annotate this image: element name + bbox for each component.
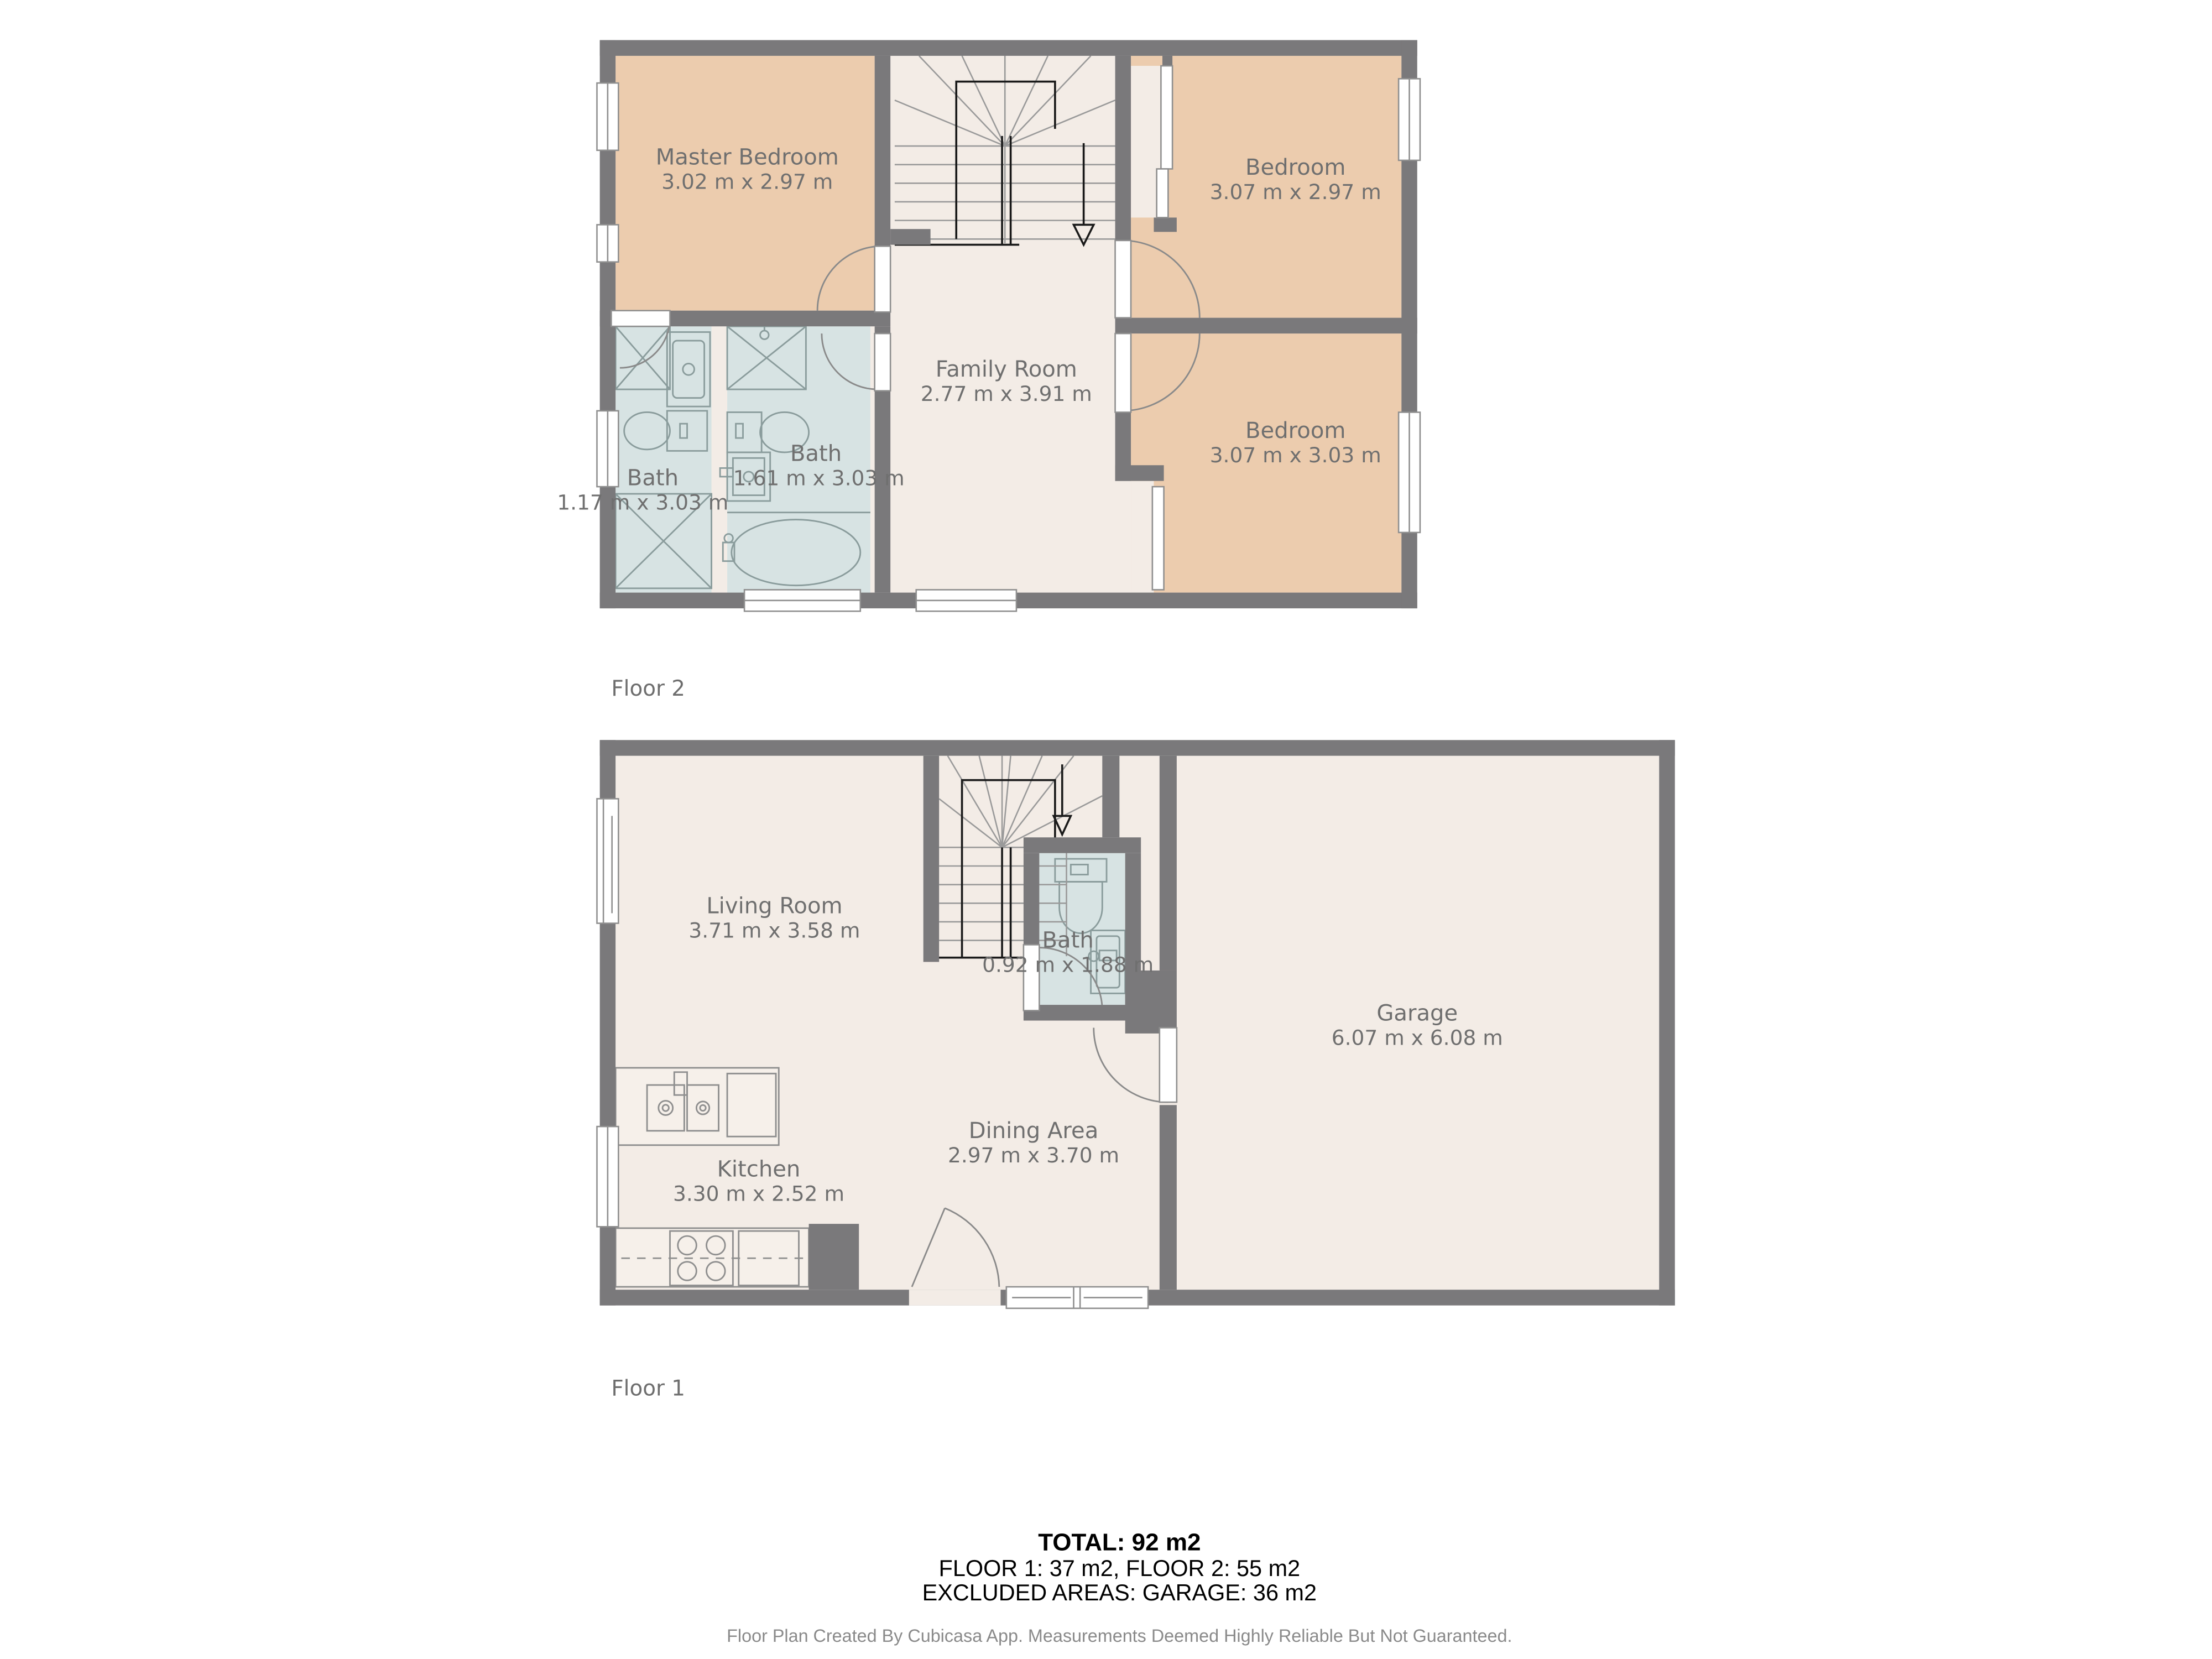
summary-block: TOTAL: 92 m2 FLOOR 1: 37 m2, FLOOR 2: 55…	[727, 1528, 1512, 1646]
window-icon	[597, 799, 618, 923]
sliding-closet-door	[1157, 169, 1168, 217]
room-label: Master Bedroom	[656, 145, 839, 170]
window-icon	[1006, 1287, 1148, 1308]
entry-door-opening	[909, 1290, 1001, 1305]
window-icon	[916, 589, 1016, 611]
window-icon	[597, 1126, 618, 1227]
room-label: Bath	[627, 465, 679, 491]
door-leaf	[611, 311, 670, 326]
room-label: Garage	[1376, 1001, 1458, 1026]
room-dims: 0.92 m x 1.88 m	[982, 953, 1154, 977]
room-dims: 3.30 m x 2.52 m	[673, 1182, 844, 1206]
room-dims: 3.02 m x 2.97 m	[661, 170, 833, 194]
room-label: Living Room	[706, 893, 842, 919]
door-leaf	[875, 333, 890, 391]
room-dims: 3.07 m x 2.97 m	[1210, 180, 1381, 204]
window-icon	[1399, 79, 1420, 160]
excluded-areas-text: EXCLUDED AREAS: GARAGE: 36 m2	[922, 1580, 1317, 1605]
room-label: Dining Area	[969, 1118, 1099, 1144]
door-leaf	[1160, 1027, 1177, 1102]
disclaimer-text: Floor Plan Created By Cubicasa App. Meas…	[727, 1626, 1512, 1646]
floor2-label: Floor 2	[611, 676, 685, 701]
room-label: Kitchen	[717, 1157, 801, 1182]
floor2-plan: Master Bedroom 3.02 m x 2.97 m Bedroom 3…	[557, 40, 1420, 701]
door-leaf	[875, 246, 890, 312]
door-leaf	[1115, 241, 1131, 318]
window-icon	[597, 411, 618, 487]
floor1-label: Floor 1	[611, 1376, 685, 1401]
room-dims: 1.61 m x 3.03 m	[733, 466, 905, 490]
window-icon	[597, 83, 618, 150]
floor1-plan: Living Room 3.71 m x 3.58 m Bath 0.92 m …	[597, 740, 1674, 1401]
door-leaf	[1115, 333, 1131, 412]
sliding-closet-door	[1161, 66, 1172, 169]
room-label: Bedroom	[1245, 155, 1345, 180]
window-icon	[1399, 412, 1420, 532]
floor-plan-canvas: Master Bedroom 3.02 m x 2.97 m Bedroom 3…	[0, 0, 2212, 1659]
room-label: Bath	[790, 441, 842, 466]
room-dims: 3.71 m x 3.58 m	[688, 918, 860, 942]
room-dims: 6.07 m x 6.08 m	[1332, 1026, 1503, 1050]
room-dims: 1.17 m x 3.03 m	[557, 490, 728, 514]
room-label: Bedroom	[1245, 418, 1345, 444]
sliding-closet-door	[1152, 487, 1164, 589]
closet-nook-br	[1131, 481, 1154, 593]
room-dims: 2.77 m x 3.91 m	[921, 382, 1092, 406]
window-icon	[597, 225, 618, 262]
window-icon	[744, 589, 860, 611]
room-label: Family Room	[936, 357, 1077, 382]
room-dims: 2.97 m x 3.70 m	[948, 1143, 1119, 1167]
room-dims: 3.07 m x 3.03 m	[1210, 443, 1381, 467]
room-label: Bath	[1042, 928, 1094, 953]
floor-areas-text: FLOOR 1: 37 m2, FLOOR 2: 55 m2	[939, 1556, 1301, 1581]
total-area-text: TOTAL: 92 m2	[1038, 1528, 1201, 1556]
